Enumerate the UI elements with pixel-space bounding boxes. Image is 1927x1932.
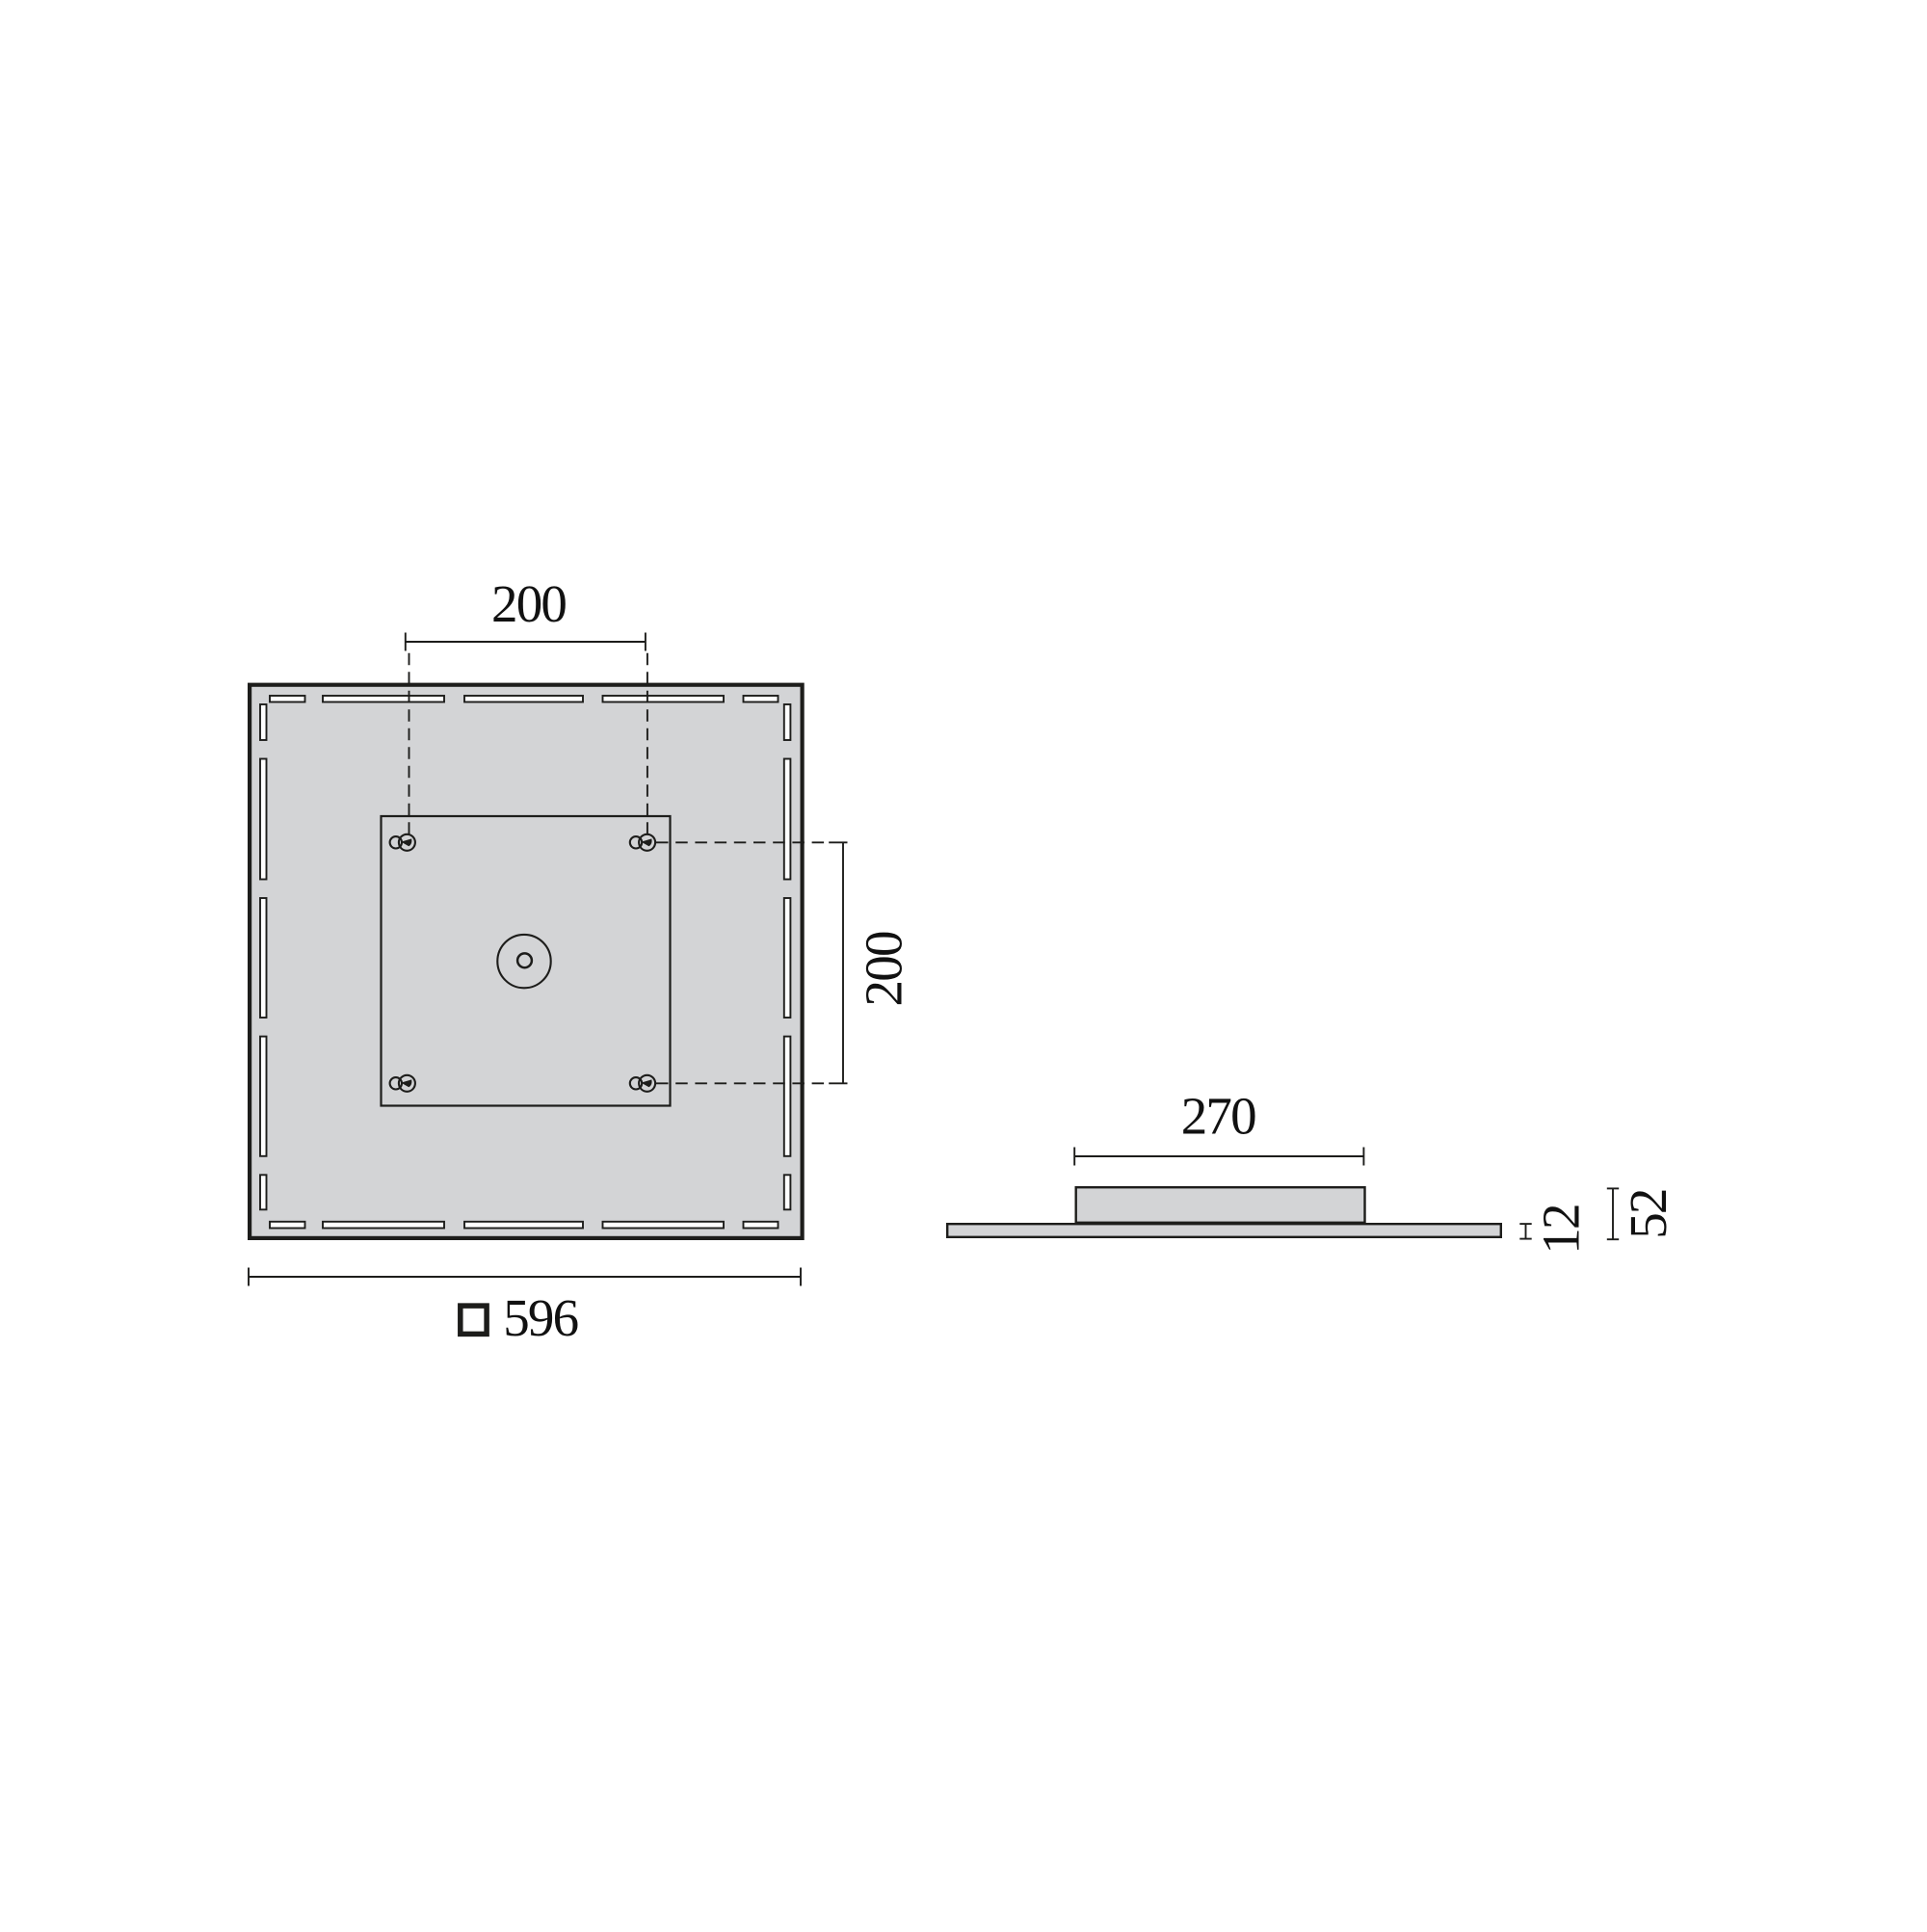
svg-text:200: 200: [855, 932, 913, 1006]
svg-text:12: 12: [1532, 1204, 1591, 1254]
svg-text:200: 200: [491, 574, 566, 633]
svg-text:52: 52: [1619, 1189, 1677, 1238]
svg-text:270: 270: [1181, 1087, 1255, 1146]
svg-text:596: 596: [503, 1288, 577, 1347]
